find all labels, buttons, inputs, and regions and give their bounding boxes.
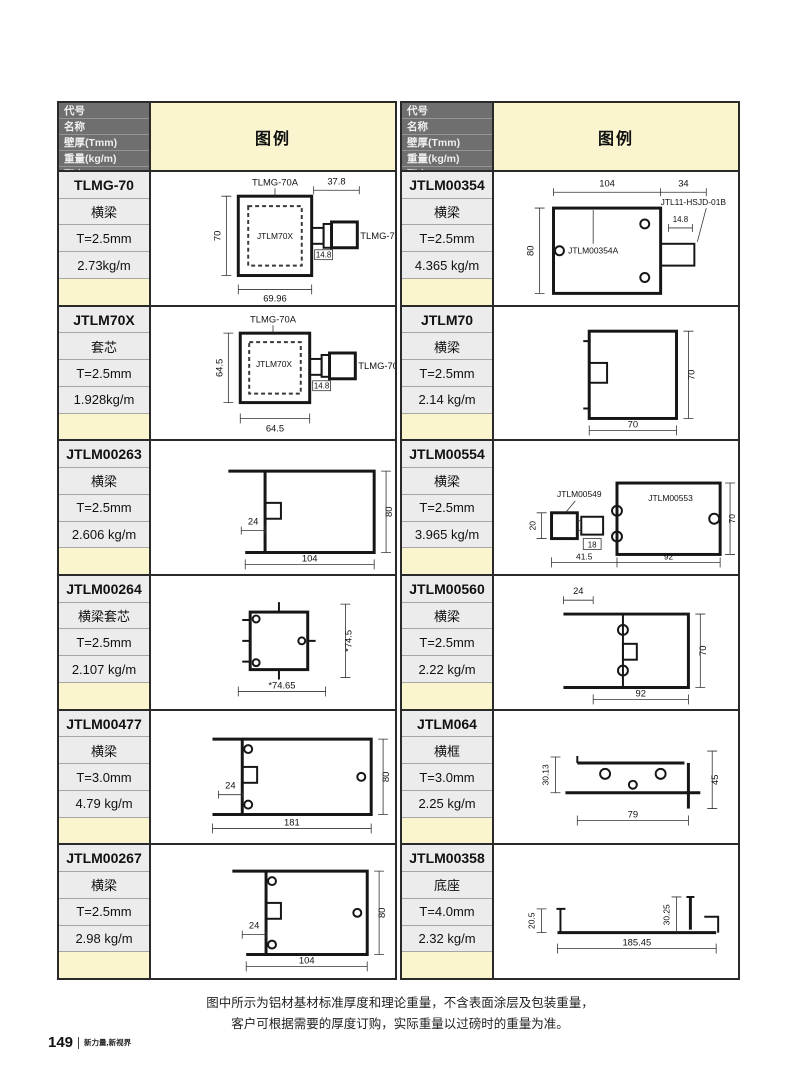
profile-weight: 2.98 kg/m — [59, 926, 149, 953]
profile-thickness: T=2.5mm — [59, 629, 149, 656]
part-label: JTLM70X — [256, 359, 292, 369]
profile-thickness: T=4.0mm — [402, 899, 492, 926]
dimension-label: *74.65 — [268, 679, 295, 690]
profile-code: JTLM00560 — [402, 576, 492, 603]
dimension-label: 80 — [380, 771, 391, 781]
footnote-line1: 图中所示为铝材基材标准厚度和理论重量，不含表面涂层及包装重量， — [0, 993, 800, 1014]
profile-weight: 2.22 kg/m — [402, 656, 492, 683]
table-header-right: 代号 名称 壁厚(Tmm) 重量(kg/m) 配套 图例 — [402, 103, 738, 170]
dimension-label: 69.96 — [263, 292, 287, 303]
profile-match — [402, 548, 492, 574]
header-row-name: 名称 — [59, 119, 149, 135]
footnote: 图中所示为铝材基材标准厚度和理论重量，不含表面涂层及包装重量， 客户可根据需要的… — [0, 993, 800, 1034]
profile-match — [59, 548, 149, 574]
header-row-code: 代号 — [59, 103, 149, 119]
profile-name: 横梁套芯 — [59, 603, 149, 630]
dimension-label: 80 — [525, 245, 536, 255]
profile-weight: 3.965 kg/m — [402, 522, 492, 549]
dimension-label: 20.5 — [527, 913, 537, 930]
dimension-label: 37.8 — [327, 175, 345, 186]
dimension-label: 64.5 — [213, 358, 224, 376]
table-row: JTLM00554 横梁 T=2.5mm 3.965 kg/m JTLM0054… — [402, 439, 738, 574]
page-number: 149 — [48, 1034, 73, 1051]
profile-table-right: 代号 名称 壁厚(Tmm) 重量(kg/m) 配套 图例 JTLM00354 横… — [400, 101, 740, 980]
profile-weight: 2.73kg/m — [59, 252, 149, 279]
profile-weight: 4.365 kg/m — [402, 252, 492, 279]
dimension-label: 14.8 — [316, 251, 332, 260]
dimension-label: 20 — [528, 521, 538, 531]
header-row-name: 名称 — [402, 119, 492, 135]
header-label-column: 代号 名称 壁厚(Tmm) 重量(kg/m) 配套 — [402, 103, 492, 170]
dimension-label: 45 — [709, 774, 720, 784]
profile-weight: 1.928kg/m — [59, 387, 149, 414]
part-label: JTLM70X — [257, 231, 293, 241]
header-label-column: 代号 名称 壁厚(Tmm) 重量(kg/m) 配套 — [59, 103, 149, 170]
profile-match — [402, 818, 492, 844]
table-header-left: 代号 名称 壁厚(Tmm) 重量(kg/m) 配套 图例 — [59, 103, 395, 170]
dimension-label: 104 — [302, 553, 318, 564]
profile-weight: 2.25 kg/m — [402, 791, 492, 818]
profile-match — [402, 279, 492, 305]
dimension-label: 70 — [628, 418, 638, 429]
profile-match — [402, 952, 492, 978]
part-label: TLMG-70A — [252, 176, 299, 187]
profile-thickness: T=2.5mm — [402, 495, 492, 522]
profile-thickness: T=2.5mm — [59, 899, 149, 926]
part-label: JTL11-HSJD-01B — [661, 197, 727, 207]
profile-thickness: T=2.5mm — [402, 629, 492, 656]
dimension-label: 64.5 — [266, 422, 284, 433]
profile-weight: 2.107 kg/m — [59, 656, 149, 683]
dimension-label: 14.8 — [673, 215, 689, 224]
profile-name: 横框 — [402, 737, 492, 764]
profile-code: JTLM00354 — [402, 172, 492, 199]
header-row-thickness: 壁厚(Tmm) — [402, 135, 492, 151]
header-row-weight: 重量(kg/m) — [402, 151, 492, 167]
dimension-label: 70 — [685, 369, 696, 379]
part-label: TLMG-70A — [250, 313, 297, 324]
profile-drawing: 24 80 181 — [149, 711, 395, 844]
profile-drawing: 24 80 104 — [149, 441, 395, 574]
dimension-label: 70 — [697, 646, 708, 656]
footnote-line2: 客户可根据需要的厚度订购，实际重量以过磅时的重量为准。 — [0, 1014, 800, 1035]
dimension-label: 92 — [664, 552, 674, 562]
profile-match — [402, 414, 492, 440]
profile-drawing: *74.5 *74.65 — [149, 576, 395, 709]
profile-thickness: T=2.5mm — [59, 360, 149, 387]
dimension-label: 181 — [284, 816, 300, 827]
profile-drawing: TLMG-70A JTLM70X TLMG-70B 64.5 14.8 64.5 — [149, 307, 395, 440]
table-row: JTLM00560 横梁 T=2.5mm 2.22 kg/m 24 70 — [402, 574, 738, 709]
profile-weight: 2.14 kg/m — [402, 387, 492, 414]
page-footer: 149 新力量,新视界 — [48, 1034, 131, 1051]
table-row: TLMG-70 横梁 T=2.5mm 2.73kg/m TLMG-70A JTL… — [59, 170, 395, 305]
profile-code: JTLM064 — [402, 711, 492, 738]
profile-weight: 2.606 kg/m — [59, 522, 149, 549]
profile-match — [59, 952, 149, 978]
dimension-label: 92 — [636, 687, 646, 698]
profile-code: JTLM00358 — [402, 845, 492, 872]
profile-name: 横梁 — [59, 468, 149, 495]
profile-drawing: 30.13 45 79 — [492, 711, 738, 844]
dimension-label: 24 — [573, 585, 583, 596]
profile-code: JTLM70X — [59, 307, 149, 334]
profile-thickness: T=3.0mm — [402, 764, 492, 791]
profile-name: 横梁 — [59, 199, 149, 226]
profile-match — [59, 818, 149, 844]
profile-code: TLMG-70 — [59, 172, 149, 199]
dimension-label: 79 — [628, 808, 638, 819]
dimension-label: 104 — [599, 177, 615, 188]
profile-thickness: T=2.5mm — [402, 225, 492, 252]
profile-name: 套芯 — [59, 333, 149, 360]
footer-divider — [78, 1037, 79, 1049]
dimension-label: 30.25 — [662, 904, 672, 925]
profile-name: 横梁 — [402, 603, 492, 630]
profile-thickness: T=2.5mm — [59, 225, 149, 252]
legend-header: 图例 — [149, 103, 395, 170]
profile-weight: 2.32 kg/m — [402, 926, 492, 953]
profile-name: 底座 — [402, 872, 492, 899]
header-row-thickness: 壁厚(Tmm) — [59, 135, 149, 151]
table-row: JTLM70X 套芯 T=2.5mm 1.928kg/m TLMG-70A JT… — [59, 305, 395, 440]
profile-name: 横梁 — [59, 872, 149, 899]
profile-code: JTLM70 — [402, 307, 492, 334]
profile-match — [402, 683, 492, 709]
dimension-label: 185.45 — [622, 937, 651, 948]
dimension-label: 14.8 — [314, 381, 330, 390]
table-row: JTLM00354 横梁 T=2.5mm 4.365 kg/m 104 34 — [402, 170, 738, 305]
catalog-page: 代号 名称 壁厚(Tmm) 重量(kg/m) 配套 图例 TLMG-70 横梁 … — [0, 0, 800, 1085]
profile-weight: 4.79 kg/m — [59, 791, 149, 818]
header-row-weight: 重量(kg/m) — [59, 151, 149, 167]
profile-name: 横梁 — [402, 333, 492, 360]
dimension-label: 30.13 — [541, 764, 551, 785]
dimension-label: *74.5 — [342, 630, 353, 652]
part-label: JTLM00549 — [557, 489, 602, 499]
profile-drawing: 24 70 92 — [492, 576, 738, 709]
footer-brand: 新力量,新视界 — [84, 1037, 131, 1048]
dimension-label: 34 — [678, 177, 688, 188]
dimension-label: 80 — [376, 908, 387, 918]
profile-match — [59, 279, 149, 305]
profile-match — [59, 414, 149, 440]
part-label: JTLM00354A — [568, 246, 618, 256]
part-label: JTLM00553 — [648, 493, 693, 503]
profile-match — [59, 683, 149, 709]
dimension-label: 24 — [225, 779, 235, 790]
dimension-label: 18 — [588, 541, 597, 550]
profile-code: JTLM00263 — [59, 441, 149, 468]
profile-thickness: T=2.5mm — [59, 495, 149, 522]
profile-code: JTLM00264 — [59, 576, 149, 603]
table-row: JTLM00267 横梁 T=2.5mm 2.98 kg/m 24 80 — [59, 843, 395, 978]
profile-code: JTLM00267 — [59, 845, 149, 872]
profile-code: JTLM00477 — [59, 711, 149, 738]
dimension-label: 70 — [211, 231, 222, 241]
profile-name: 横梁 — [402, 468, 492, 495]
table-row: JTLM00477 横梁 T=3.0mm 4.79 kg/m 24 80 — [59, 709, 395, 844]
part-label: TLMG-70B — [360, 230, 395, 241]
dimension-label: 104 — [299, 955, 315, 966]
table-row: JTLM00358 底座 T=4.0mm 2.32 kg/m 20.5 30.2… — [402, 843, 738, 978]
profile-drawing: 70 70 — [492, 307, 738, 440]
profile-drawing: TLMG-70A JTLM70X TLMG-70B 37.8 70 14.8 6… — [149, 172, 395, 305]
legend-header: 图例 — [492, 103, 738, 170]
table-row: JTLM00264 横梁套芯 T=2.5mm 2.107 kg/m *74.5 … — [59, 574, 395, 709]
table-row: JTLM00263 横梁 T=2.5mm 2.606 kg/m 24 80 10… — [59, 439, 395, 574]
profile-thickness: T=2.5mm — [402, 360, 492, 387]
table-row: JTLM70 横梁 T=2.5mm 2.14 kg/m 70 70 — [402, 305, 738, 440]
dimension-label: 41.5 — [576, 552, 593, 562]
dimension-label: 70 — [727, 514, 737, 524]
profile-drawing: 104 34 JTL11-HSJD-01B 14.8 JTLM00354A 80 — [492, 172, 738, 305]
profile-code: JTLM00554 — [402, 441, 492, 468]
profile-thickness: T=3.0mm — [59, 764, 149, 791]
part-label: TLMG-70B — [358, 360, 395, 371]
dimension-label: 80 — [383, 507, 394, 517]
profile-table-left: 代号 名称 壁厚(Tmm) 重量(kg/m) 配套 图例 TLMG-70 横梁 … — [57, 101, 397, 980]
table-row: JTLM064 横框 T=3.0mm 2.25 kg/m 30.13 — [402, 709, 738, 844]
profile-drawing: JTLM00549 JTLM00553 20 18 41.5 92 70 — [492, 441, 738, 574]
profile-name: 横梁 — [402, 199, 492, 226]
profile-drawing: 24 80 104 — [149, 845, 395, 978]
profile-name: 横梁 — [59, 737, 149, 764]
profile-drawing: 20.5 30.25 185.45 — [492, 845, 738, 978]
dimension-label: 24 — [248, 516, 258, 527]
dimension-label: 24 — [249, 920, 259, 931]
header-row-code: 代号 — [402, 103, 492, 119]
